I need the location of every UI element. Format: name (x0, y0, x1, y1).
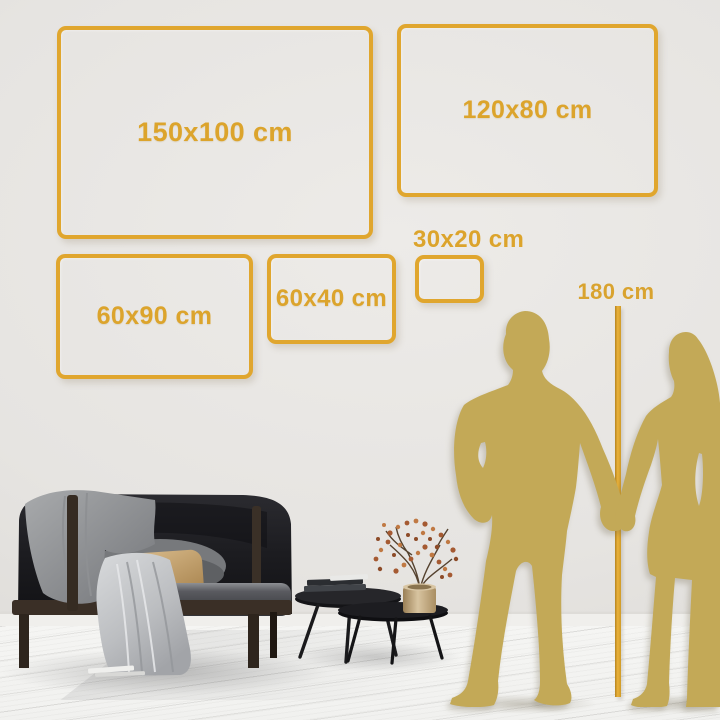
size-label-60x90: 60x90 cm (97, 302, 213, 331)
size-label-120x80: 120x80 cm (462, 96, 592, 125)
size-frame-30x20 (415, 255, 484, 303)
coffee-table-large (295, 588, 401, 663)
size-label-30x20: 30x20 cm (413, 226, 524, 254)
man-silhouette (450, 311, 626, 707)
sofa (5, 488, 305, 690)
couple-silhouettes (440, 303, 720, 707)
coffee-table-group (290, 515, 465, 665)
height-marker-label: 180 cm (577, 279, 654, 305)
size-label-150x100: 150x100 cm (137, 117, 293, 148)
size-frame-120x80: 120x80 cm (397, 24, 658, 197)
woman-silhouette (615, 332, 720, 707)
sofa-leg (248, 614, 259, 668)
size-label-60x40: 60x40 cm (276, 285, 387, 313)
sofa-leg (19, 614, 29, 668)
canvas-size-guide-scene: 150x100 cm 120x80 cm 60x90 cm 60x40 cm 3… (0, 0, 720, 720)
size-frame-60x40: 60x40 cm (267, 254, 396, 344)
brass-vase (403, 583, 436, 613)
sofa-left-post (67, 495, 78, 611)
size-frame-150x100: 150x100 cm (57, 26, 373, 239)
book-stack (304, 574, 368, 592)
sofa-leg (270, 612, 277, 658)
size-frame-60x90: 60x90 cm (56, 254, 253, 379)
